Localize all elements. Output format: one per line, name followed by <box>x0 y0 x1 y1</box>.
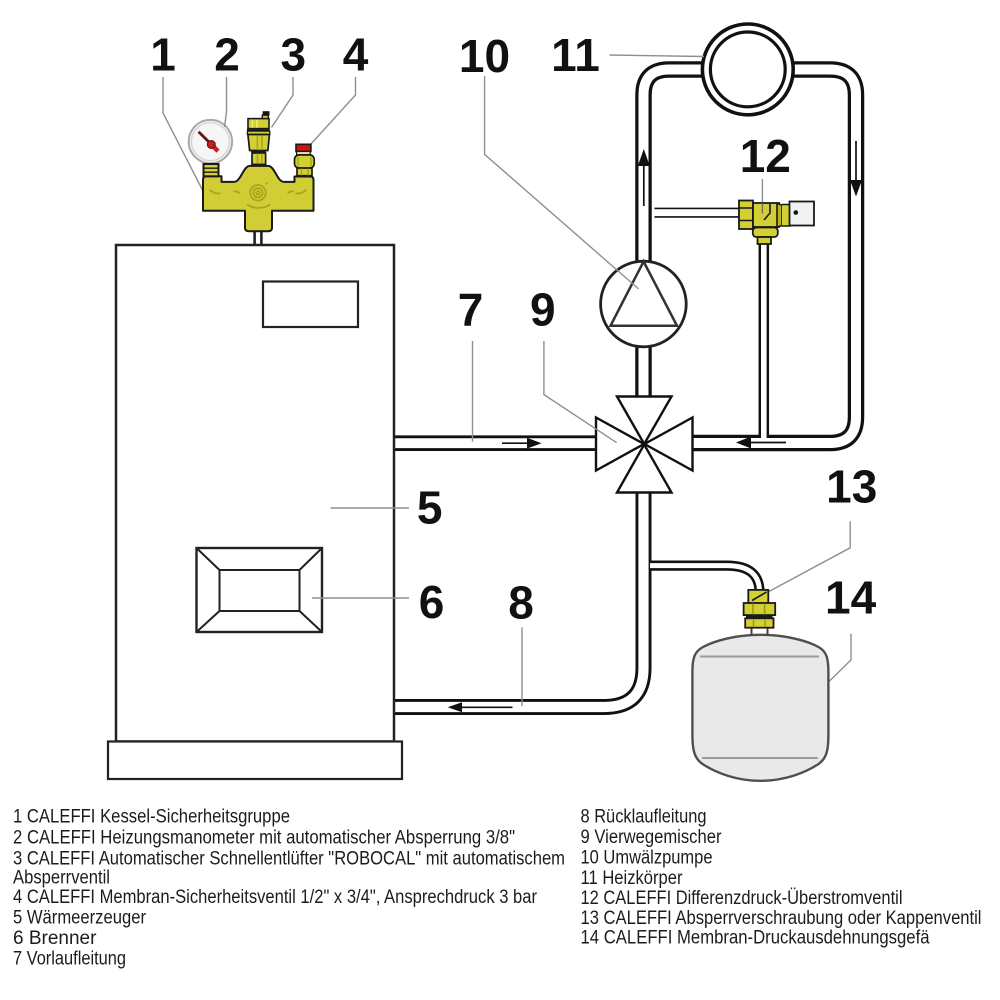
svg-text:1: 1 <box>150 29 176 81</box>
svg-text:14 CALEFFI Membran-Druckausdeh: 14 CALEFFI Membran-Druckausdehnungsgefä <box>581 928 930 949</box>
svg-text:12: 12 <box>740 130 791 182</box>
svg-text:7: 7 <box>458 284 484 336</box>
svg-text:2 CALEFFI Heizungsmanometer mi: 2 CALEFFI Heizungsmanometer mit automati… <box>13 828 515 849</box>
svg-text:9: 9 <box>530 284 556 336</box>
svg-text:3: 3 <box>281 29 307 81</box>
svg-text:4 CALEFFI Membran-Sicherheitsv: 4 CALEFFI Membran-Sicherheitsventil 1/2"… <box>13 887 538 908</box>
svg-text:Absperrventil: Absperrventil <box>13 868 110 889</box>
svg-text:6: 6 <box>419 576 445 628</box>
svg-text:5: 5 <box>417 482 443 534</box>
svg-text:13 CALEFFI Absperrverschraubun: 13 CALEFFI Absperrverschraubung oder Kap… <box>581 908 982 929</box>
svg-text:3 CALEFFI Automatischer Schnel: 3 CALEFFI Automatischer Schnellentlüfter… <box>13 849 565 870</box>
svg-text:6 Brenner: 6 Brenner <box>13 928 97 949</box>
svg-text:13: 13 <box>826 461 877 513</box>
svg-text:8: 8 <box>508 577 534 629</box>
svg-text:1 CALEFFI Kessel-Sicherheitsgr: 1 CALEFFI Kessel-Sicherheitsgruppe <box>13 807 290 828</box>
svg-text:5 Wärmeerzeuger: 5 Wärmeerzeuger <box>13 908 147 929</box>
svg-text:2: 2 <box>214 29 240 81</box>
svg-text:10: 10 <box>459 30 510 82</box>
svg-text:4: 4 <box>343 29 369 81</box>
svg-text:14: 14 <box>825 572 877 624</box>
svg-text:12 CALEFFI Differenzdruck-Über: 12 CALEFFI Differenzdruck-Überstromventi… <box>581 888 903 909</box>
svg-text:9 Vierwegemischer: 9 Vierwegemischer <box>581 827 723 848</box>
svg-text:7 Vorlaufleitung: 7 Vorlaufleitung <box>13 949 126 970</box>
svg-text:11: 11 <box>551 29 600 81</box>
svg-text:11 Heizkörper: 11 Heizkörper <box>581 868 684 889</box>
svg-text:8 Rücklaufleitung: 8 Rücklaufleitung <box>581 807 707 828</box>
svg-text:10 Umwälzpumpe: 10 Umwälzpumpe <box>581 848 713 869</box>
